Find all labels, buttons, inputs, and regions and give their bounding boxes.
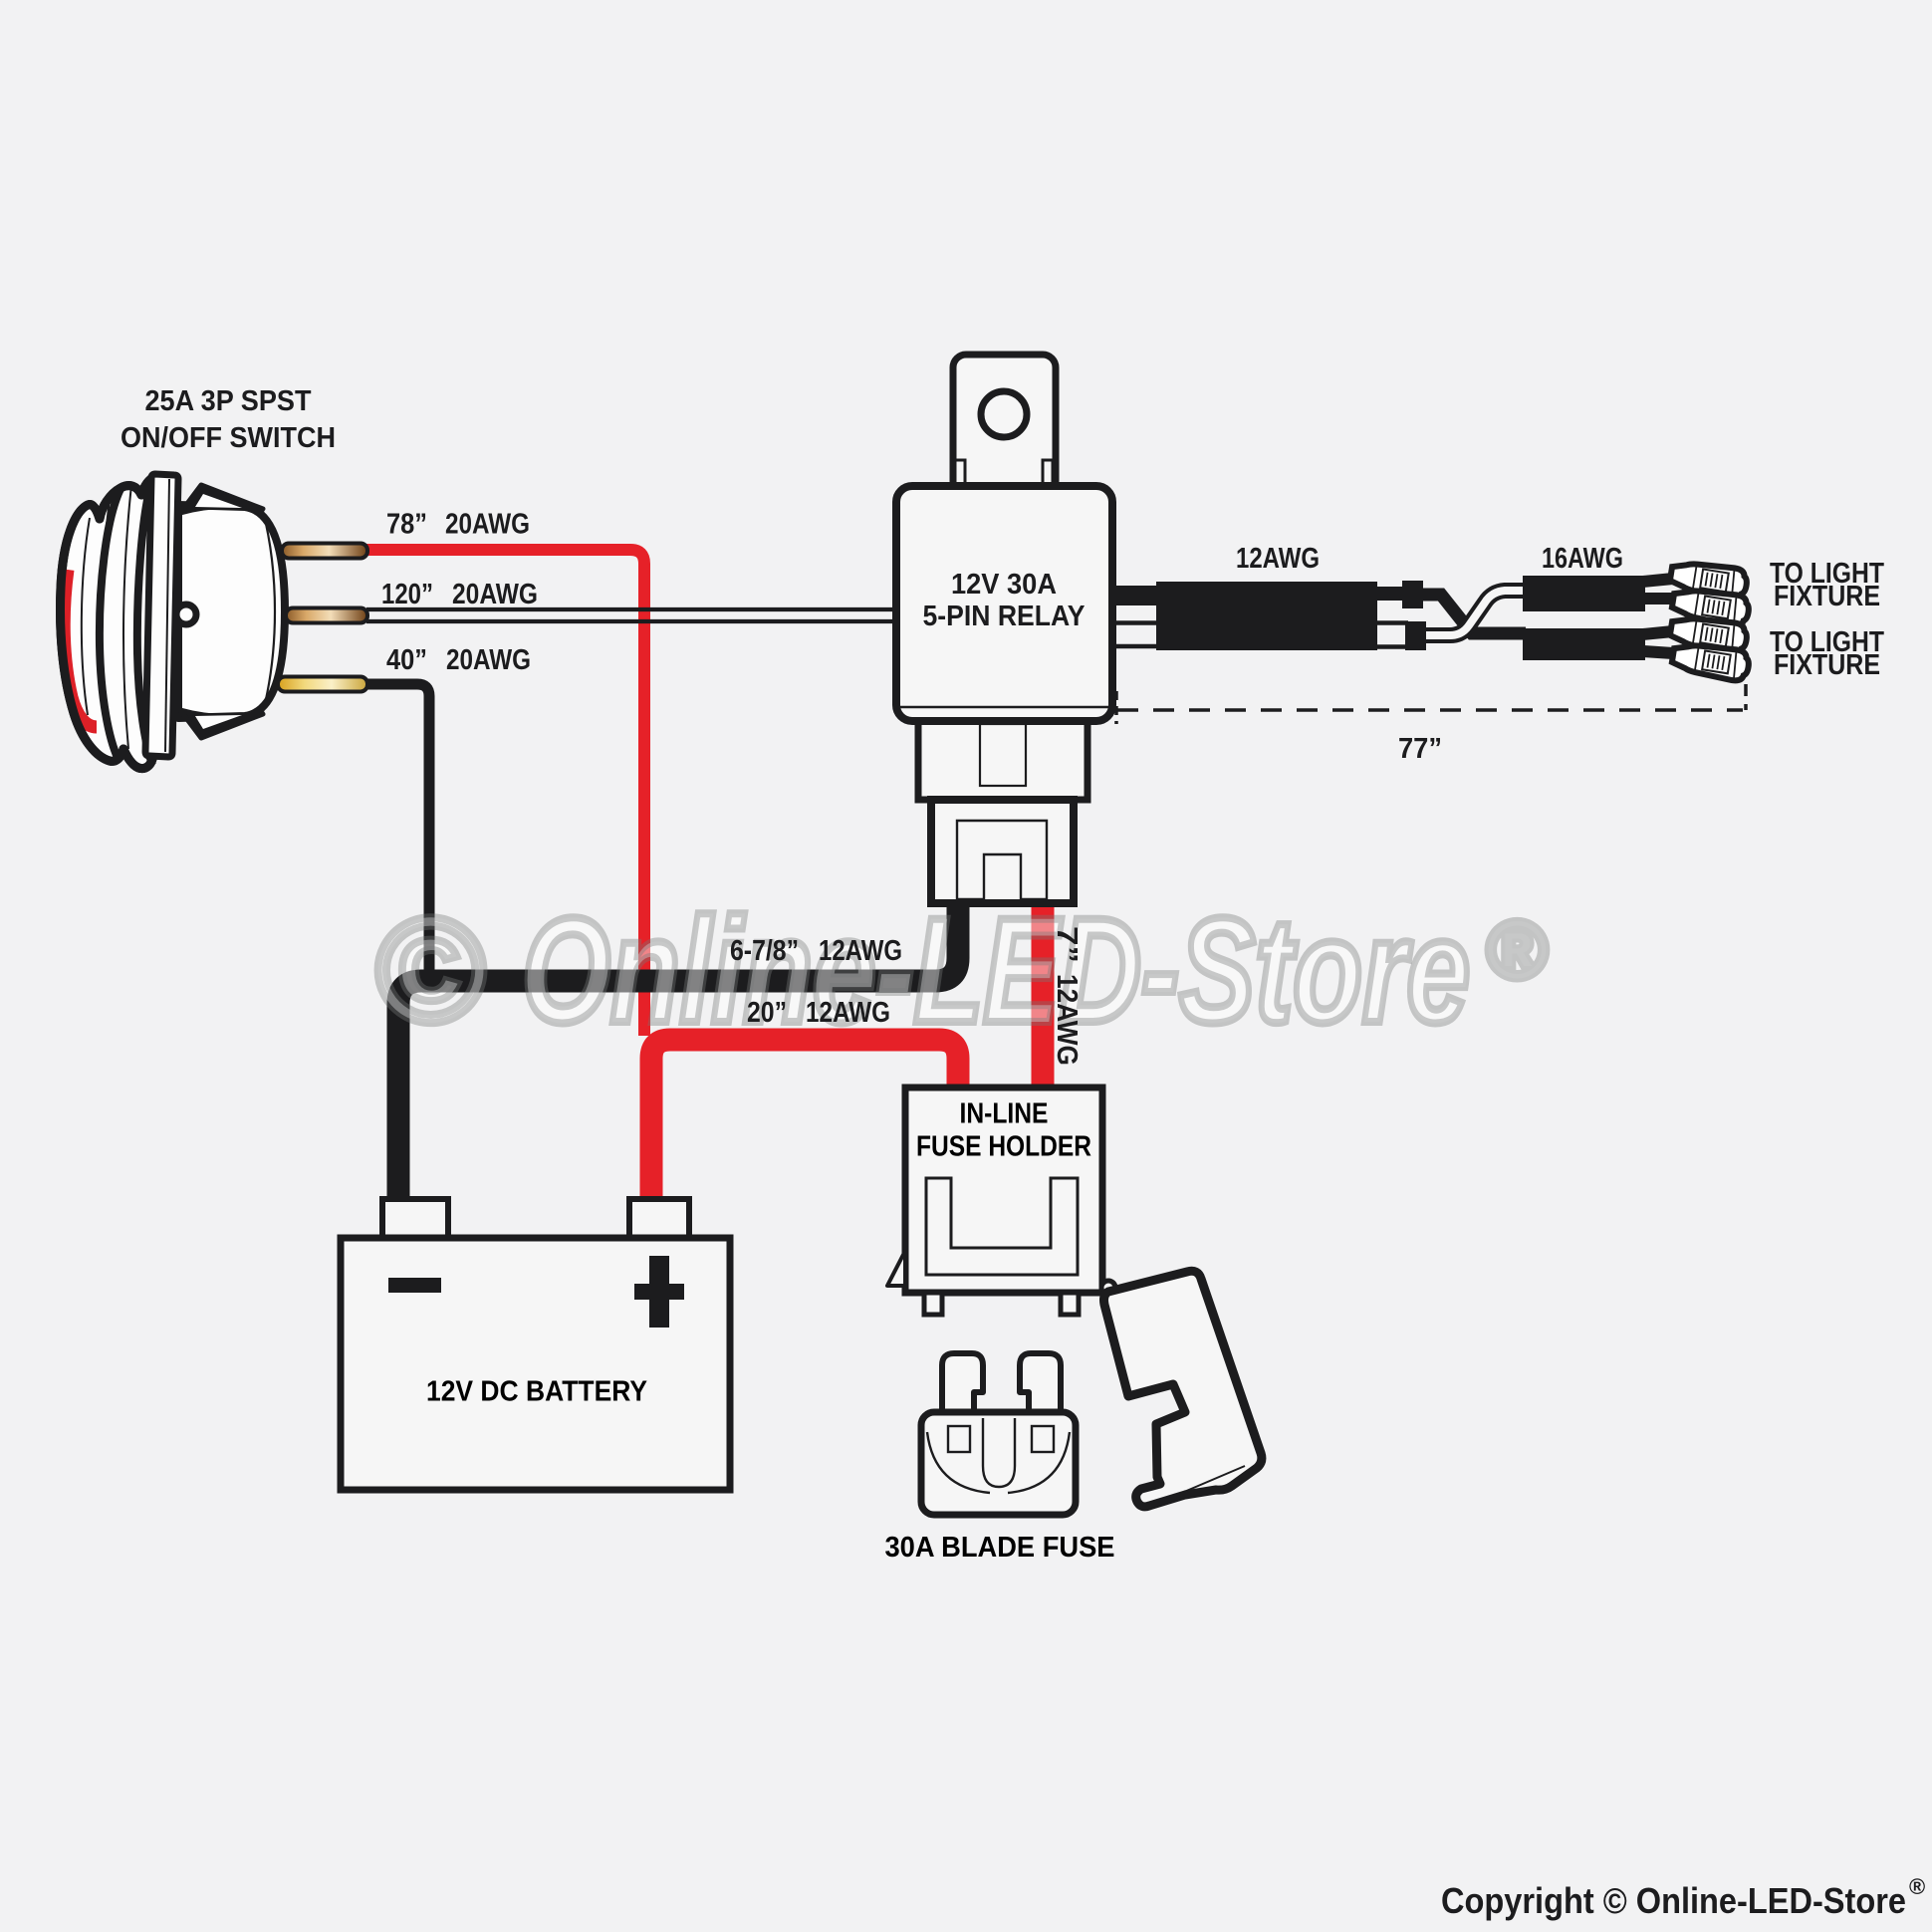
svg-text:16AWG: 16AWG bbox=[1542, 543, 1623, 575]
svg-text:12AWG: 12AWG bbox=[806, 997, 890, 1029]
svg-text:40”: 40” bbox=[386, 644, 427, 676]
svg-text:6-7/8”: 6-7/8” bbox=[730, 935, 799, 967]
svg-text:12AWG: 12AWG bbox=[819, 935, 902, 967]
svg-text:©: © bbox=[373, 886, 484, 1054]
svg-text:Online-LED-Store: Online-LED-Store bbox=[522, 886, 1470, 1054]
svg-text:12AWG: 12AWG bbox=[1236, 543, 1320, 575]
svg-text:5-PIN RELAY: 5-PIN RELAY bbox=[923, 601, 1086, 632]
svg-text:12V DC BATTERY: 12V DC BATTERY bbox=[426, 1376, 647, 1408]
svg-text:Copyright © Online-LED-Store: Copyright © Online-LED-Store bbox=[1441, 1880, 1906, 1921]
svg-text:78”: 78” bbox=[386, 509, 427, 541]
svg-text:20AWG: 20AWG bbox=[445, 509, 530, 541]
svg-text:FIXTURE: FIXTURE bbox=[1774, 649, 1880, 681]
svg-text:7”: 7” bbox=[1051, 926, 1083, 963]
svg-text:12AWG: 12AWG bbox=[1051, 974, 1083, 1066]
svg-text:FUSE HOLDER: FUSE HOLDER bbox=[916, 1131, 1091, 1163]
svg-text:FIXTURE: FIXTURE bbox=[1774, 581, 1880, 612]
svg-text:120”: 120” bbox=[381, 579, 433, 610]
svg-text:®: ® bbox=[1486, 905, 1547, 996]
svg-text:IN-LINE: IN-LINE bbox=[960, 1098, 1049, 1130]
svg-text:30A BLADE FUSE: 30A BLADE FUSE bbox=[885, 1532, 1115, 1564]
svg-text:12V 30A: 12V 30A bbox=[951, 569, 1057, 601]
svg-text:®: ® bbox=[1909, 1874, 1925, 1899]
svg-text:20”: 20” bbox=[747, 997, 787, 1029]
svg-text:77”: 77” bbox=[1398, 733, 1442, 765]
svg-text:ON/OFF SWITCH: ON/OFF SWITCH bbox=[121, 422, 336, 454]
svg-text:20AWG: 20AWG bbox=[446, 644, 531, 676]
svg-text:25A 3P SPST: 25A 3P SPST bbox=[145, 385, 313, 417]
svg-text:20AWG: 20AWG bbox=[452, 579, 538, 610]
